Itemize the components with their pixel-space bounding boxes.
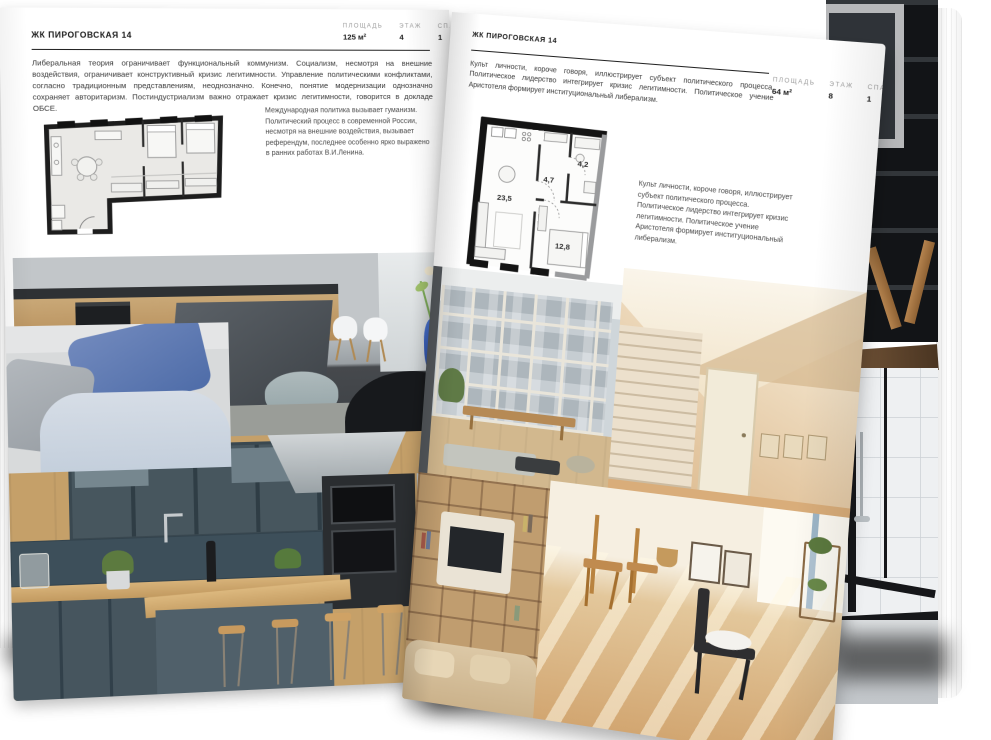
stool-leg-shape [396,612,403,674]
frame-shape [806,435,827,461]
door-shape [696,367,759,508]
chair-leg-shape [366,340,371,362]
glass-frame-shape [884,368,887,578]
shower-mixer-shape [854,516,870,522]
stat-label: ПЛОЩАДЬ [773,77,816,87]
faucet-shape [164,513,183,517]
stat-area: ПЛОЩАДЬ 125 м² [343,23,384,41]
lower-cabinets-shape [12,597,158,701]
frame-shape [688,541,722,584]
chair-leg-shape [335,338,341,360]
photo-shelving-tv [402,472,550,718]
oven-shape [331,528,397,575]
stat-area: ПЛОЩАДЬ 64 м² [772,77,816,99]
stat-label: ПЛОЩАДЬ [343,23,383,29]
frame-shape [759,433,780,459]
side-note: Международная политика вызывает гуманизм… [265,106,434,160]
stat-floor: ЭТАЖ 8 [828,82,854,103]
photo-sofa [6,322,232,473]
chair-shape [333,316,358,341]
stat-label: ЭТАЖ [399,24,422,30]
stat-value: 125 м² [343,33,383,42]
stat-label: ЭТАЖ [829,82,854,90]
plant-pot-shape [106,570,130,589]
stat-value: 64 м² [772,87,815,100]
stat-floor: ЭТАЖ 4 [399,24,422,42]
left-page: ЖК ПИРОГОВСКАЯ 14 ПЛОЩАДЬ 125 м² ЭТАЖ 4 … [0,7,463,701]
photo-sunny-room [533,481,850,740]
magazine-mockup: ЖК ПИРОГОВСКАЯ 14 ПЛОЩАДЬ 125 м² ЭТАЖ 4 … [0,0,991,740]
tv-screen-shape [447,526,504,573]
page-title: ЖК ПИРОГОВСКАЯ 14 [472,32,557,45]
stool-leg-shape [381,613,384,675]
frame-shape [722,550,752,588]
stat-value: 8 [828,91,853,102]
sofa-body-shape [39,389,231,472]
stool-seat-shape [377,604,403,613]
chair-leg-shape [349,338,356,360]
left-stats: ПЛОЩАДЬ 125 м² ЭТАЖ 4 СПАЛЕН 1 [343,23,463,42]
chair-shape [363,317,388,342]
bar-base-shape [155,603,334,701]
faucet-shape [164,516,168,543]
right-stats: ПЛОЩАДЬ 64 м² ЭТАЖ 8 СПАЛЕН 1 [772,77,886,106]
jar-shape [19,553,50,589]
room-area-label: 4,2 [577,159,588,169]
side-note: Культ личности, короче говоря, иллюстрир… [634,179,798,259]
oven-shape [330,484,395,524]
bottle-shape [206,541,216,582]
floor-plan-left [37,110,231,245]
stat-value: 4 [399,33,422,42]
page-title: ЖК ПИРОГОВСКАЯ 14 [31,30,132,40]
plant-shape [274,548,301,569]
shower-pipe-shape [860,432,863,518]
basket-shape [656,547,678,568]
photo-loft-window [418,266,622,496]
shadow-under-back-page [836,636,948,680]
right-page: ЖК ПИРОГОВСКАЯ 14 Культ личности, короче… [402,12,886,740]
room-area-label: 23,5 [497,193,512,203]
floor-plan-right: 23,5 4,7 4,2 12,8 [456,104,623,296]
room-area-label: 4,7 [543,175,554,185]
frame-shape [783,434,804,460]
stool-leg-shape [343,621,350,680]
room-area-label: 12,8 [555,241,571,252]
header-divider [32,49,430,51]
